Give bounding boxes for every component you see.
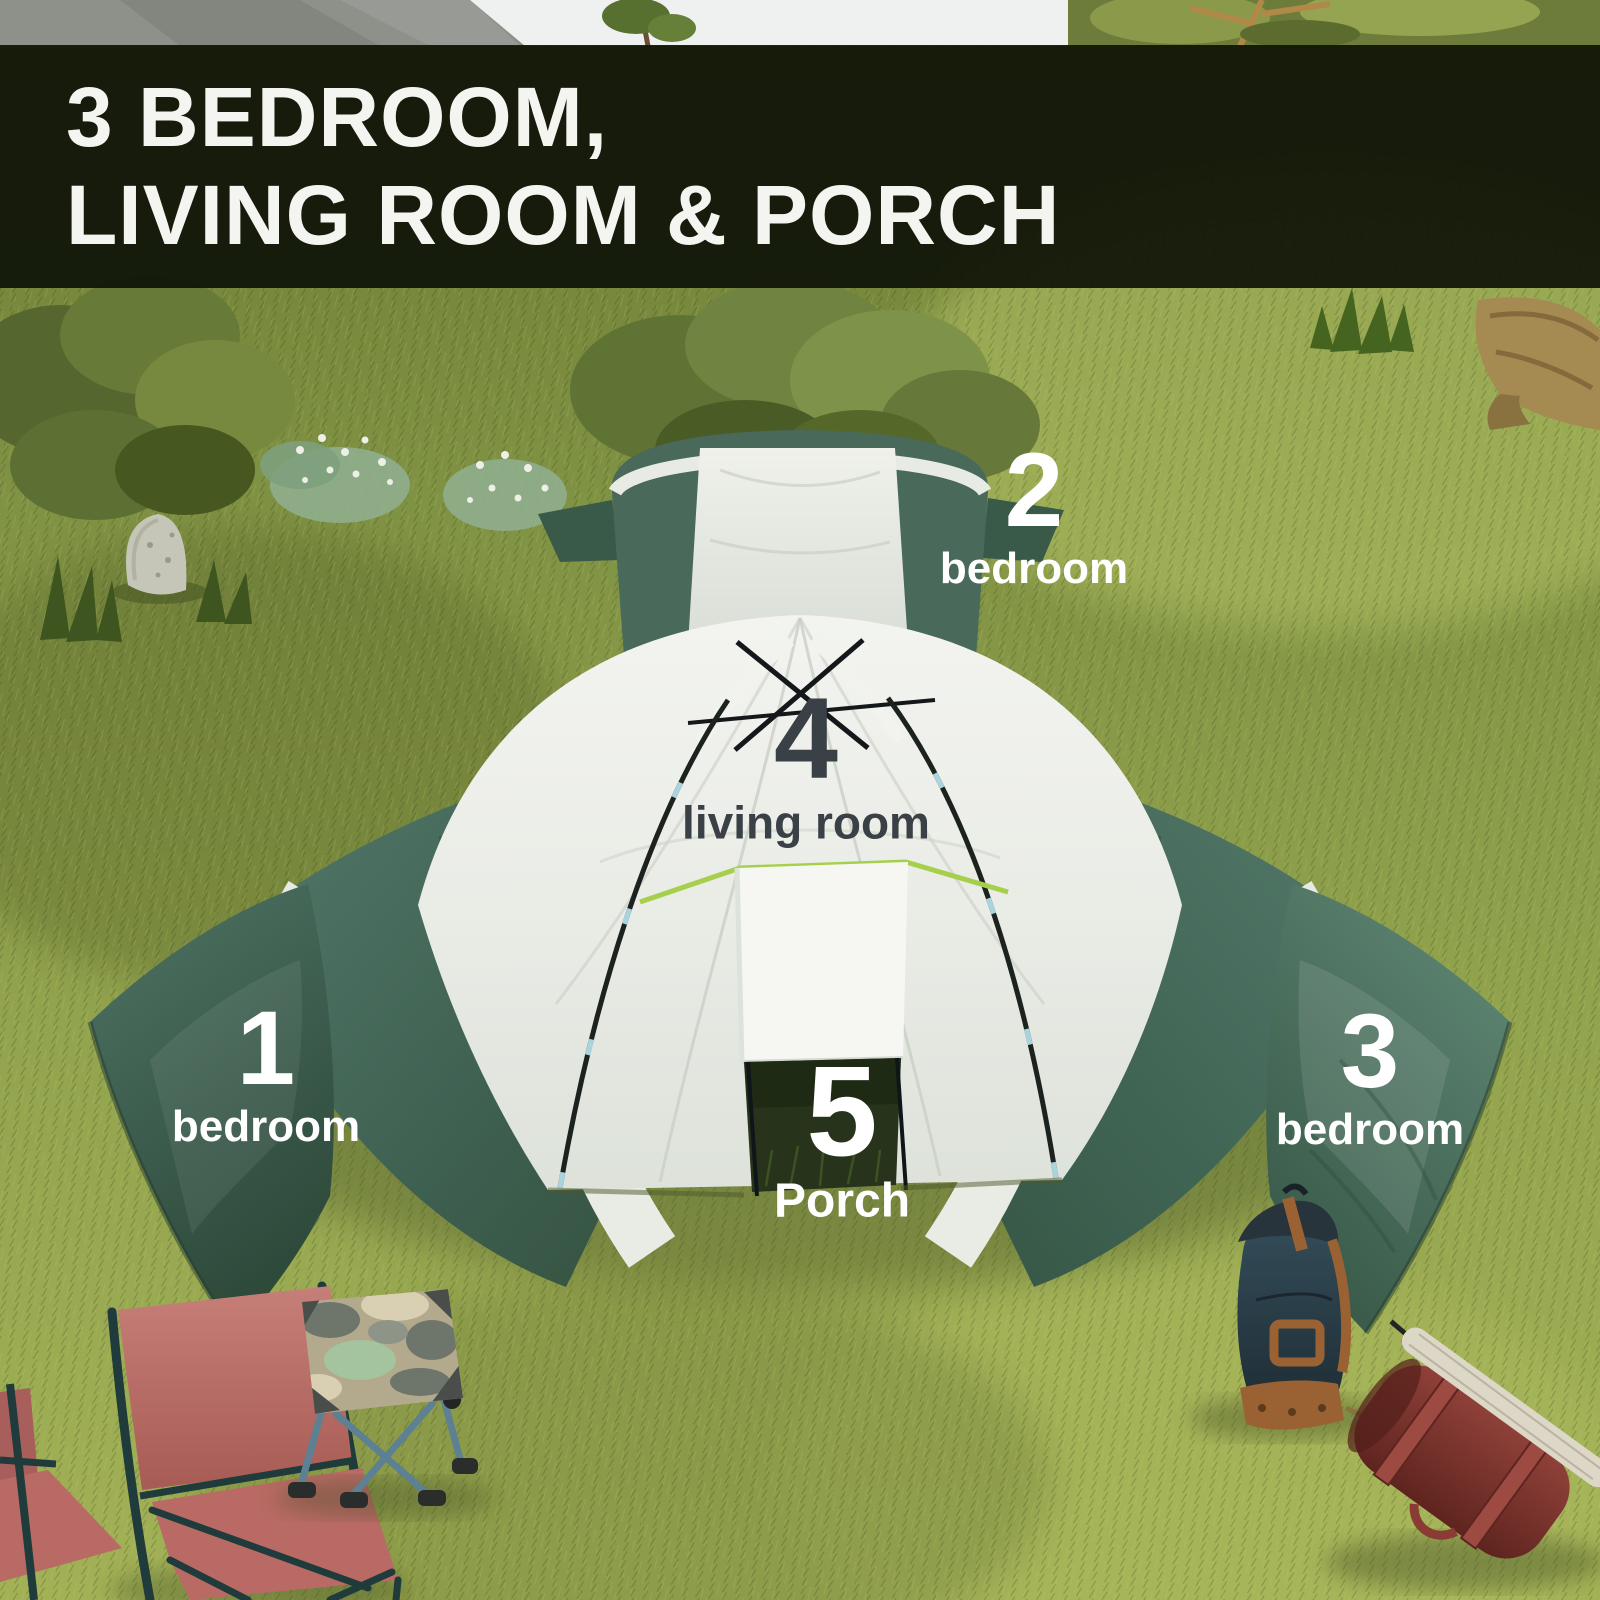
log <box>1476 297 1600 430</box>
tent-product-image: 3 BEDROOM, LIVING ROOM & PORCH 2 bedroom… <box>0 0 1600 1600</box>
label-bedroom-1: 1 bedroom <box>172 1002 360 1149</box>
title-line-1: 3 BEDROOM, <box>66 69 1600 166</box>
bedroom-3-text: bedroom <box>1276 1107 1464 1151</box>
bedroom-2-text: bedroom <box>940 546 1128 590</box>
porch-number: 5 <box>774 1054 910 1169</box>
living-room-text: living room <box>682 799 930 845</box>
backpack-base <box>1240 1381 1344 1430</box>
door-flap <box>737 862 908 1062</box>
bedroom-1-number: 1 <box>172 1002 360 1097</box>
bedroom-1-text: bedroom <box>172 1104 360 1148</box>
bedroom-2-number: 2 <box>940 444 1128 539</box>
living-room-number: 4 <box>682 687 930 791</box>
label-bedroom-2: 2 bedroom <box>940 444 1128 591</box>
label-porch: 5 Porch <box>774 1054 910 1225</box>
tree-canopy <box>1068 0 1600 48</box>
title-banner: 3 BEDROOM, LIVING ROOM & PORCH <box>0 45 1600 288</box>
backdrop-strip <box>0 0 1600 48</box>
bedroom-3-number: 3 <box>1276 1005 1464 1100</box>
porch-text: Porch <box>774 1178 910 1226</box>
label-bedroom-3: 3 bedroom <box>1276 1005 1464 1152</box>
title-line-2: LIVING ROOM & PORCH <box>66 167 1600 264</box>
label-living-room: 4 living room <box>682 687 930 845</box>
